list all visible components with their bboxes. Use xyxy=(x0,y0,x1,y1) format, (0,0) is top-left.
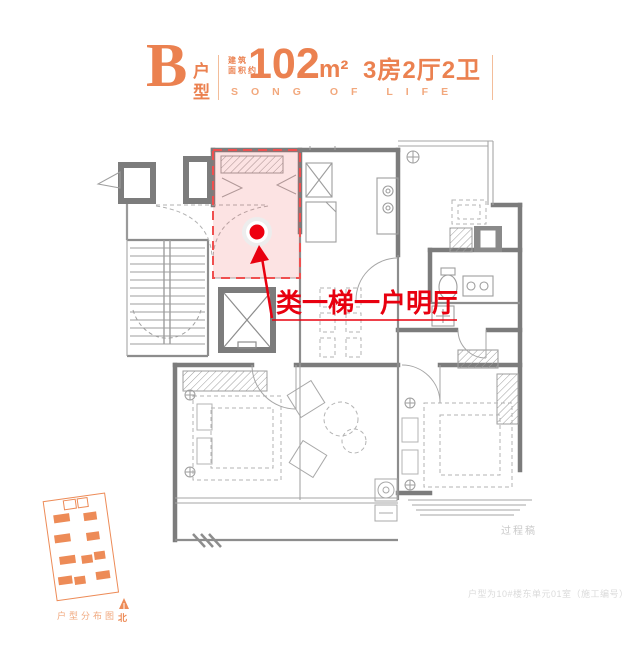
area-value: 102 xyxy=(248,42,320,86)
header-divider-left xyxy=(218,55,219,100)
bedroom-master xyxy=(402,365,518,490)
unit-letter: B xyxy=(146,34,187,98)
unit-type-label: 户型 xyxy=(190,62,208,104)
living-room xyxy=(287,381,397,521)
draft-watermark: 过程稿 xyxy=(501,522,537,537)
area-unit: m² xyxy=(319,57,348,83)
header-divider-right xyxy=(492,55,493,100)
elevator xyxy=(221,290,273,350)
highlight-marker-dot xyxy=(250,225,265,240)
floor-plan-page: B 户型 建筑 面积约 102 m² 3房2厅2卫 SONG OF LIFE 类… xyxy=(0,0,640,647)
north-label: 北 xyxy=(118,611,127,624)
rooms-summary: 3房2厅2卫 xyxy=(363,57,481,84)
staircase xyxy=(130,240,205,344)
bedroom-southwest xyxy=(183,365,296,480)
duct-shafts xyxy=(98,159,210,201)
site-plan xyxy=(43,493,118,601)
callout-text: 类一梯一户明厅 xyxy=(276,289,458,318)
kitchen xyxy=(306,146,398,242)
dining-area xyxy=(320,151,502,357)
bathroom-fixtures xyxy=(432,268,498,368)
header-subtitle: SONG OF LIFE xyxy=(231,86,461,98)
site-plan-caption: 户型分布图 xyxy=(57,609,117,622)
north-arrow-icon xyxy=(119,598,129,609)
unit-footnote: 户型为10#楼东单元01室（施工编号） xyxy=(468,587,629,600)
